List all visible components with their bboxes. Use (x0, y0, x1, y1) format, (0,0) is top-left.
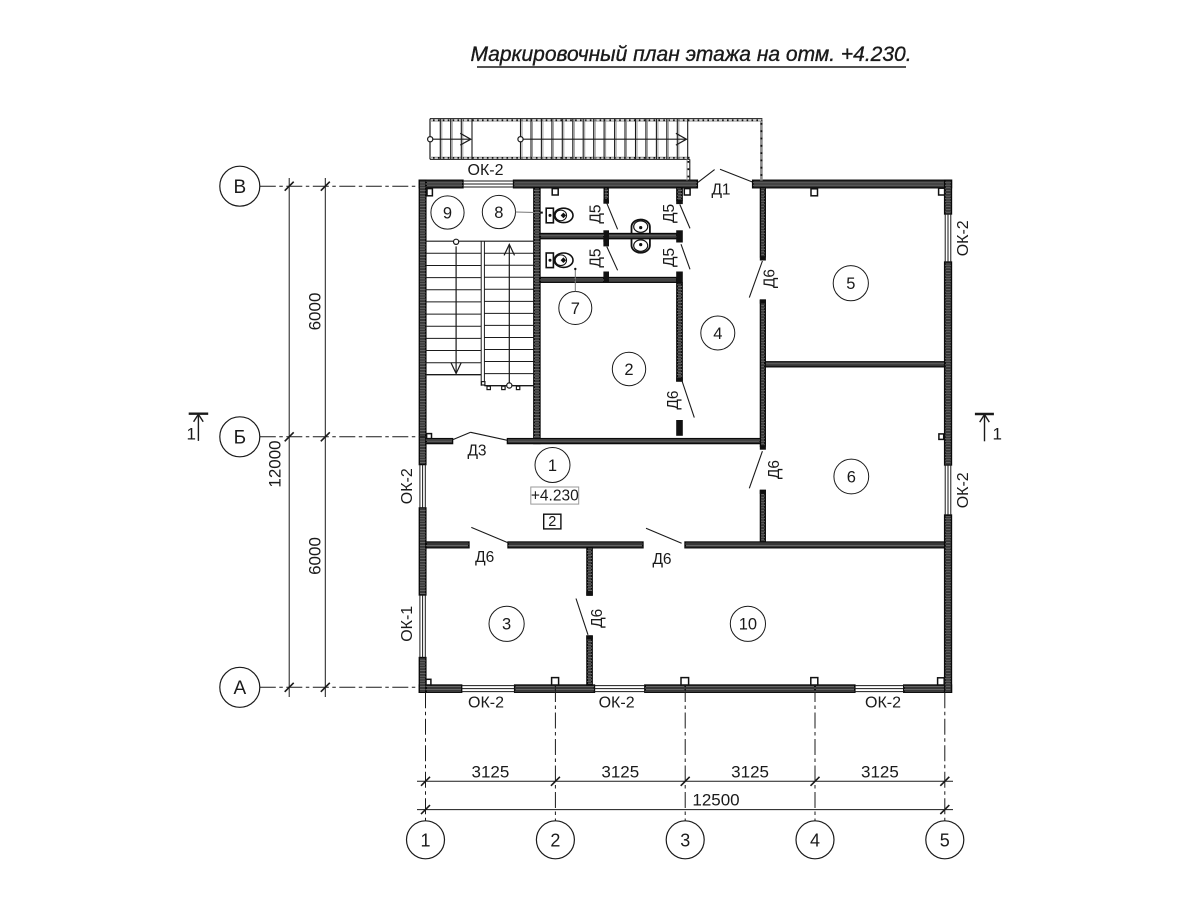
svg-text:ОК-2: ОК-2 (468, 162, 504, 179)
svg-text:Д6: Д6 (652, 551, 671, 568)
svg-text:10: 10 (739, 616, 757, 634)
svg-text:12500: 12500 (692, 791, 739, 810)
svg-text:2: 2 (548, 514, 556, 530)
svg-text:Д6: Д6 (475, 549, 494, 566)
svg-text:12000: 12000 (266, 440, 285, 487)
svg-text:9: 9 (443, 204, 452, 222)
svg-text:Д6: Д6 (762, 269, 779, 288)
svg-text:Д5: Д5 (661, 204, 678, 223)
svg-text:1: 1 (420, 830, 430, 850)
svg-text:2: 2 (550, 830, 560, 850)
svg-text:6000: 6000 (306, 293, 325, 331)
svg-text:Д6: Д6 (589, 609, 606, 628)
svg-text:Б: Б (234, 428, 246, 449)
svg-text:1: 1 (548, 457, 557, 475)
svg-text:В: В (233, 177, 246, 198)
svg-text:4: 4 (810, 830, 820, 850)
svg-text:ОК-2: ОК-2 (599, 695, 635, 712)
svg-text:Д6: Д6 (665, 390, 682, 409)
svg-text:Маркировочный план этажа на от: Маркировочный план этажа на отм. +4.230. (470, 43, 911, 66)
svg-text:ОК-2: ОК-2 (865, 695, 901, 712)
svg-text:ОК-2: ОК-2 (955, 472, 972, 508)
svg-text:8: 8 (494, 204, 503, 222)
svg-text:3125: 3125 (471, 762, 509, 781)
svg-text:Д6: Д6 (766, 460, 783, 479)
svg-text:6: 6 (847, 468, 856, 486)
svg-text:6000: 6000 (306, 537, 325, 575)
svg-text:4: 4 (713, 325, 722, 343)
svg-text:5: 5 (846, 275, 855, 293)
svg-text:Д5: Д5 (661, 248, 678, 267)
svg-text:ОК-2: ОК-2 (399, 468, 416, 504)
svg-text:А: А (233, 678, 246, 699)
svg-text:3125: 3125 (861, 762, 899, 781)
svg-text:2: 2 (624, 361, 633, 379)
svg-text:7: 7 (571, 300, 580, 318)
svg-text:ОК-1: ОК-1 (399, 606, 416, 642)
svg-text:3125: 3125 (601, 762, 639, 781)
svg-text:3: 3 (680, 830, 690, 850)
svg-text:3: 3 (502, 616, 511, 634)
svg-text:ОК-2: ОК-2 (955, 220, 972, 256)
svg-text:1: 1 (187, 425, 196, 444)
svg-text:5: 5 (940, 830, 950, 850)
svg-text:ОК-2: ОК-2 (468, 695, 504, 712)
svg-text:Д1: Д1 (711, 182, 730, 199)
svg-text:Д5: Д5 (588, 204, 605, 223)
svg-text:1: 1 (993, 425, 1002, 444)
svg-text:Д3: Д3 (467, 443, 486, 460)
svg-text:+4.230: +4.230 (531, 488, 579, 505)
svg-text:Д5: Д5 (588, 248, 605, 267)
svg-text:3125: 3125 (731, 762, 769, 781)
